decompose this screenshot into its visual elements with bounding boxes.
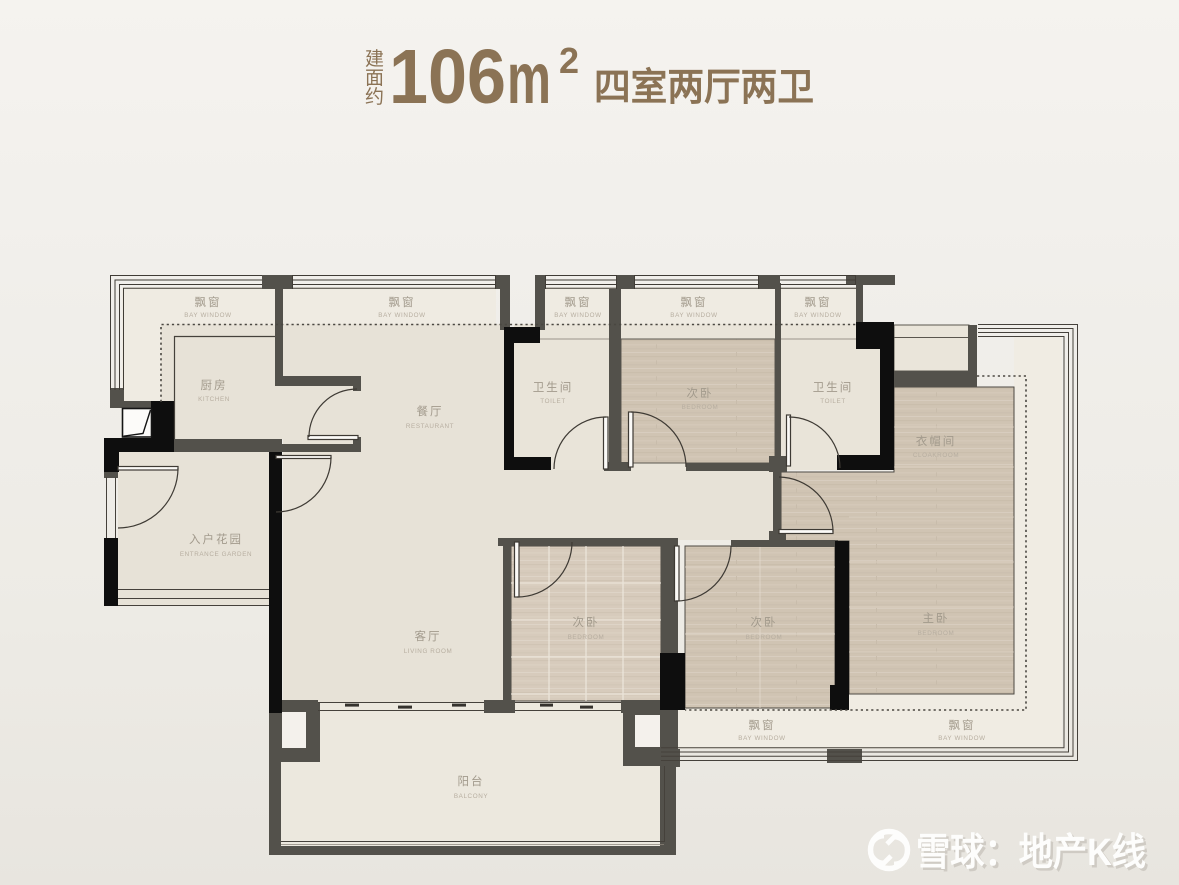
svg-text:BEDROOM: BEDROOM [682,404,719,411]
svg-text:BEDROOM: BEDROOM [918,630,955,637]
svg-text:TOILET: TOILET [820,398,846,405]
svg-text:BALCONY: BALCONY [454,793,488,800]
svg-text:BEDROOM: BEDROOM [746,634,783,641]
svg-text:次卧: 次卧 [687,386,714,400]
svg-text:厨房: 厨房 [201,379,228,392]
svg-text:BAY WINDOW: BAY WINDOW [794,312,841,319]
svg-text:飘窗: 飘窗 [805,295,832,309]
svg-text:BAY WINDOW: BAY WINDOW [184,312,231,319]
svg-text:飘窗: 飘窗 [389,295,416,309]
svg-text:飘窗: 飘窗 [681,295,708,309]
svg-text:TOILET: TOILET [540,398,566,405]
svg-text:飘窗: 飘窗 [949,718,976,732]
svg-text:阳台: 阳台 [458,774,485,788]
svg-text:2: 2 [559,40,579,81]
svg-text:面: 面 [365,68,384,89]
svg-text:次卧: 次卧 [751,615,778,629]
svg-text:客厅: 客厅 [415,629,442,643]
svg-text:BAY WINDOW: BAY WINDOW [554,312,601,319]
svg-text:BAY WINDOW: BAY WINDOW [938,735,985,742]
svg-text:卫生间: 卫生间 [533,380,574,394]
svg-text:飘窗: 飘窗 [195,295,222,309]
svg-text:飘窗: 飘窗 [749,718,776,732]
svg-text:ENTRANCE GARDEN: ENTRANCE GARDEN [180,551,252,558]
svg-text:m: m [507,39,551,119]
svg-text:LIVING ROOM: LIVING ROOM [404,648,453,655]
svg-text:BAY WINDOW: BAY WINDOW [378,312,425,319]
svg-text:雪球：地产K线: 雪球：地产K线 [916,832,1146,874]
svg-text:入户花园: 入户花园 [189,532,243,546]
svg-text:主卧: 主卧 [923,612,950,625]
svg-text:四室两厅两卫: 四室两厅两卫 [594,66,814,109]
svg-text:餐厅: 餐厅 [417,404,444,418]
svg-text:飘窗: 飘窗 [565,295,592,309]
svg-text:BAY WINDOW: BAY WINDOW [738,735,785,742]
svg-text:卫生间: 卫生间 [813,380,854,394]
svg-text:次卧: 次卧 [573,615,600,629]
svg-text:约: 约 [365,86,384,108]
svg-text:106: 106 [389,34,506,120]
svg-text:BAY WINDOW: BAY WINDOW [670,312,717,319]
svg-text:衣帽间: 衣帽间 [916,434,957,448]
svg-text:建: 建 [365,48,384,70]
svg-text:CLOAKROOM: CLOAKROOM [913,452,959,459]
svg-text:RESTAURANT: RESTAURANT [406,423,454,430]
svg-text:BEDROOM: BEDROOM [568,634,605,641]
svg-text:KITCHEN: KITCHEN [198,396,230,403]
